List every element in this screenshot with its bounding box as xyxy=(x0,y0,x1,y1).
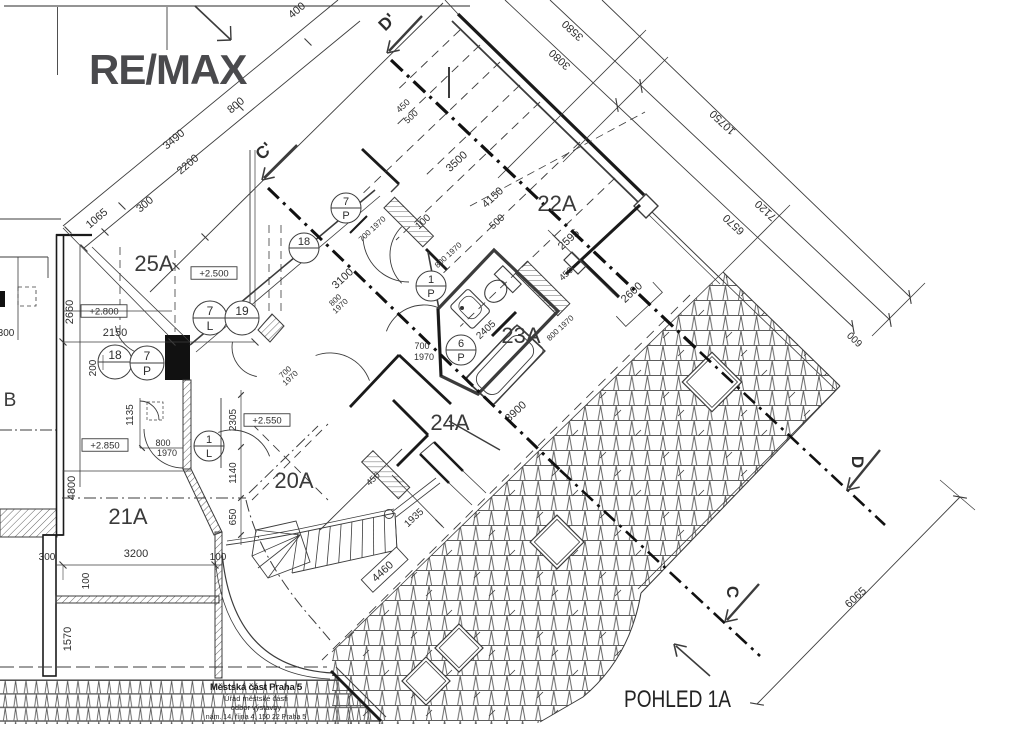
svg-text:25A: 25A xyxy=(134,251,173,276)
svg-text:D: D xyxy=(848,456,867,468)
svg-text:1570: 1570 xyxy=(62,627,74,651)
svg-text:700: 700 xyxy=(414,341,429,351)
svg-text:7: 7 xyxy=(207,304,214,318)
svg-text:7: 7 xyxy=(343,196,349,208)
svg-text:100: 100 xyxy=(81,572,92,589)
svg-text:1970: 1970 xyxy=(414,352,434,362)
svg-text:7: 7 xyxy=(144,349,151,363)
svg-text:+2.850: +2.850 xyxy=(90,441,119,452)
svg-text:18: 18 xyxy=(298,236,310,248)
svg-text:23A: 23A xyxy=(501,323,540,348)
svg-text:800: 800 xyxy=(155,438,170,448)
svg-text:Městská část Praha 5: Městská část Praha 5 xyxy=(210,682,303,693)
svg-text:1140: 1140 xyxy=(228,462,239,484)
svg-text:odbor výstavby: odbor výstavby xyxy=(231,703,282,712)
svg-text:+2.800: +2.800 xyxy=(89,307,118,318)
svg-text:P: P xyxy=(342,210,349,222)
svg-text:1135: 1135 xyxy=(125,404,136,426)
svg-text:P: P xyxy=(427,288,434,300)
svg-text:2660: 2660 xyxy=(64,300,76,324)
svg-text:C: C xyxy=(723,586,742,598)
svg-text:6: 6 xyxy=(458,338,464,350)
svg-text:19: 19 xyxy=(235,304,249,318)
svg-text:300: 300 xyxy=(0,328,15,339)
svg-text:1970: 1970 xyxy=(157,448,177,458)
svg-text:RE/MAX: RE/MAX xyxy=(89,46,247,93)
svg-text:3200: 3200 xyxy=(124,548,148,560)
svg-text:L: L xyxy=(207,319,214,333)
svg-text:P: P xyxy=(143,364,151,378)
svg-text:+2.500: +2.500 xyxy=(199,269,228,280)
svg-text:4800: 4800 xyxy=(66,476,78,500)
svg-text:B: B xyxy=(4,390,17,411)
svg-text:nám. 14. října 4, 150 22 Praha: nám. 14. října 4, 150 22 Praha 5 xyxy=(206,714,307,721)
svg-text:18: 18 xyxy=(108,348,122,362)
svg-text:22A: 22A xyxy=(537,191,576,216)
svg-text:Úřad městské části: Úřad městské části xyxy=(224,694,288,703)
svg-text:2150: 2150 xyxy=(103,327,127,339)
svg-text:1: 1 xyxy=(428,274,434,286)
svg-text:L: L xyxy=(206,448,212,460)
svg-text:2305: 2305 xyxy=(228,408,239,431)
svg-text:P: P xyxy=(457,352,464,364)
svg-text:1: 1 xyxy=(206,434,212,446)
svg-text:20A: 20A xyxy=(274,468,313,493)
svg-text:POHLED 1A: POHLED 1A xyxy=(624,686,731,713)
svg-text:100: 100 xyxy=(210,552,227,563)
svg-text:650: 650 xyxy=(228,508,239,525)
svg-text:21A: 21A xyxy=(108,504,147,529)
svg-text:300: 300 xyxy=(39,552,56,563)
svg-text:+2.550: +2.550 xyxy=(252,416,281,427)
svg-text:200: 200 xyxy=(88,359,99,376)
svg-text:24A: 24A xyxy=(430,410,469,435)
